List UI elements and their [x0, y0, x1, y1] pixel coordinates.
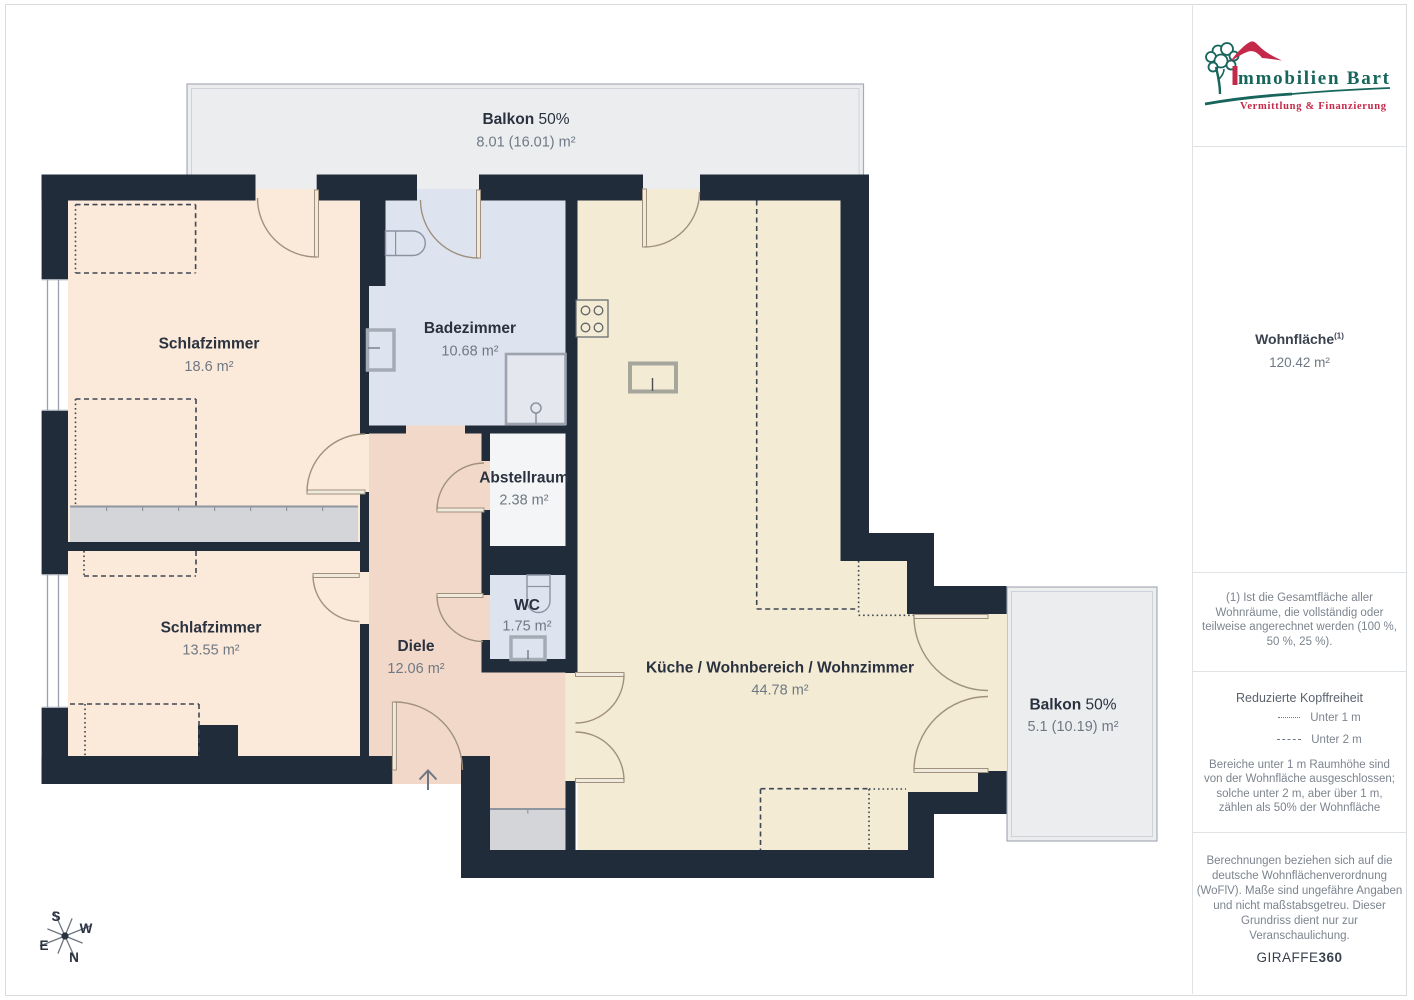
- svg-text:10.68 m²: 10.68 m²: [441, 344, 498, 360]
- svg-text:1.75 m²: 1.75 m²: [502, 619, 551, 635]
- svg-text:Balkon 50%: Balkon 50%: [1029, 697, 1116, 714]
- svg-text:Badezimmer: Badezimmer: [424, 320, 516, 337]
- svg-text:8.01 (16.01) m²: 8.01 (16.01) m²: [476, 135, 575, 151]
- svg-text:Vermittlung & Finanzierung: Vermittlung & Finanzierung: [1240, 101, 1387, 112]
- svg-text:W: W: [80, 921, 93, 936]
- svg-text:S: S: [51, 909, 60, 924]
- svg-text:Schlafzimmer: Schlafzimmer: [161, 620, 262, 637]
- svg-text:E: E: [39, 938, 48, 953]
- svg-text:44.78 m²: 44.78 m²: [751, 683, 808, 699]
- svg-text:5.1 (10.19) m²: 5.1 (10.19) m²: [1027, 719, 1118, 735]
- svg-text:N: N: [69, 950, 79, 965]
- svg-text:2.38 m²: 2.38 m²: [499, 493, 548, 509]
- svg-text:13.55 m²: 13.55 m²: [182, 643, 239, 659]
- svg-text:12.06 m²: 12.06 m²: [387, 661, 444, 677]
- svg-text:18.6 m²: 18.6 m²: [184, 359, 233, 375]
- svg-text:Balkon 50%: Balkon 50%: [482, 111, 569, 128]
- svg-text:Küche / Wohnbereich / Wohnzimm: Küche / Wohnbereich / Wohnzimmer: [646, 660, 914, 677]
- svg-text:Diele: Diele: [397, 638, 434, 655]
- svg-text:Abstellraum: Abstellraum: [479, 470, 569, 487]
- svg-text:WC: WC: [514, 597, 540, 614]
- svg-text:mmobilien Bart: mmobilien Bart: [1238, 68, 1390, 89]
- svg-text:Schlafzimmer: Schlafzimmer: [159, 336, 260, 353]
